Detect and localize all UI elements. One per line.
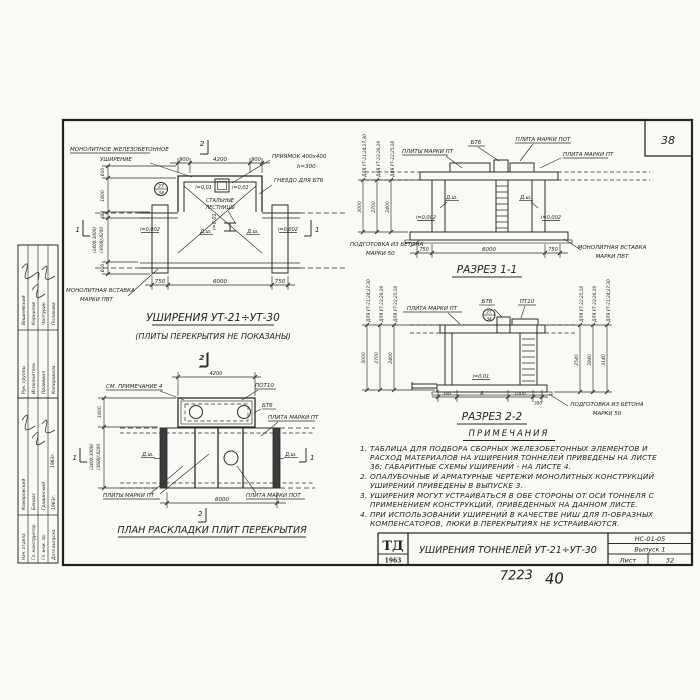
sheet-word: Лист	[619, 557, 637, 565]
svg-text:3140: 3140	[601, 354, 607, 366]
axis-label: Д.ш.	[246, 229, 259, 235]
handwritten-code: 7223	[500, 568, 534, 584]
svg-text:2840: 2840	[587, 354, 593, 366]
svg-text:ДЛЯ УТ-22;25;28: ДЛЯ УТ-22;25;28	[579, 286, 584, 323]
stamp-role: Рук. группы	[21, 365, 27, 394]
slope-label: i=0,002	[140, 227, 160, 233]
stamp-role: Исполнитель	[31, 362, 37, 394]
drawing-canvas: 38 Рук. группы Исполнитель Проверил Копи…	[0, 0, 700, 700]
prep-label: МАРКИ 50	[366, 251, 395, 257]
svg-text:1: 1	[76, 226, 80, 234]
svg-text:4200: 4200	[213, 157, 227, 163]
svg-text:3000: 3000	[357, 201, 363, 213]
svg-text:(2400;3000): (2400;3000)	[89, 444, 94, 470]
svg-text:6000: 6000	[213, 279, 227, 285]
svg-text:ДЛЯ УТ-22;25;28: ДЛЯ УТ-22;25;28	[390, 141, 395, 178]
prep-label: ПОДГОТОВКА ИЗ БЕТОНА	[570, 402, 643, 408]
monolithic-widening-label: МОНОЛИТНОЕ ЖЕЛЕЗОБЕТОННОЕ	[70, 147, 169, 153]
see-note-label: СМ. ПРИМЕЧАНИЕ 4	[106, 384, 163, 390]
note-item: 4. ПРИ ИСПОЛЬЗОВАНИИ УШИРЕНИЙ В КАЧЕСТВЕ…	[360, 510, 658, 528]
logo-td: ТД	[382, 539, 403, 554]
svg-text:2400: 2400	[388, 352, 394, 364]
sheet-title: УШИРЕНИЯ ТОННЕЛЕЙ УТ-21÷УТ-30	[419, 544, 597, 556]
drawing-sheet: 38 Рук. группы Исполнитель Проверил Копи…	[0, 0, 700, 700]
svg-text:34: 34	[486, 317, 492, 322]
detail-callout: 27 34	[155, 183, 168, 197]
svg-text:1: 1	[73, 454, 77, 462]
slope-label: i=0,01	[212, 213, 218, 230]
svg-text:300: 300	[100, 211, 105, 219]
section-2-2-title: РАЗРЕЗ 2-2	[462, 411, 523, 423]
axis-label: Д.ш.	[445, 195, 458, 201]
manhole	[224, 451, 238, 465]
svg-text:27: 27	[486, 310, 492, 315]
monolithic-widening-label: УШИРЕНИЕ	[100, 157, 132, 163]
note-item: 3. УШИРЕНИЯ МОГУТ УСТРАИВАТЬСЯ В ОБЕ СТО…	[360, 491, 658, 509]
pt-slabs-label: ПЛИТЫ МАРКИ ПТ	[402, 149, 454, 155]
bt6-label: БТ6	[482, 299, 493, 305]
svg-text:2: 2	[199, 354, 204, 362]
slope-label: i=0,01	[195, 185, 212, 191]
insert-label: МАРКИ ПВТ	[596, 254, 630, 260]
stairs-label: СТАЛЬНЫЕ	[206, 198, 235, 204]
pot-slab-label: ПЛИТА МАРКИ ПОТ	[516, 137, 571, 143]
plan-title: УШИРЕНИЯ УТ-21÷УТ-30	[146, 312, 280, 324]
stamp-name: Корнилов	[31, 302, 37, 325]
notes-block: ПРИМЕЧАНИЯ 1. ТАБЛИЦА ДЛЯ ПОДБОРА СБОРНЫ…	[360, 429, 658, 528]
dim-left-variants: ДЛЯ УТ-21;24;27;30 ДЛЯ УТ-23;26;29 ДЛЯ У…	[361, 279, 443, 392]
stamp-role: Копировала	[51, 365, 57, 394]
insert-label: МОНОЛИТНАЯ ВСТАВКА	[578, 245, 647, 251]
svg-text:(3600);4200: (3600);4200	[96, 444, 101, 470]
section-1-1-drawing: i=0,002 i=0,002 Д.ш. Д.ш. БТ6 ПЛИТА МАРК…	[350, 134, 650, 277]
i-beam-symbol	[224, 223, 236, 231]
handwritten-number: 40	[545, 569, 565, 588]
slab-layout-title: ПЛАН РАСКЛАДКИ ПЛИТ ПЕРЕКРЫТИЯ	[117, 525, 307, 536]
stamp-role: Проверил	[41, 371, 47, 394]
pt-slabs-label: ПЛИТЫ МАРКИ ПТ	[103, 493, 155, 499]
svg-text:2540: 2540	[574, 354, 580, 366]
stamp-name: 1963г.	[51, 495, 57, 510]
axis-label: Д.ш.	[141, 452, 154, 458]
svg-text:ДЛЯ УТ-23;26;29: ДЛЯ УТ-23;26;29	[592, 286, 597, 323]
insert-label: МОНОЛИТНАЯ ВСТАВКА	[66, 288, 135, 294]
slope-label: i=0,01	[232, 185, 249, 191]
bt6-label: БТ6	[262, 403, 273, 409]
hatch-opening	[190, 406, 203, 419]
stamp-name: Чалтурин	[41, 302, 47, 325]
axis-label: Д.ш.	[284, 452, 297, 458]
issue-label: Выпуск 1	[634, 546, 665, 554]
svg-text:4200: 4200	[210, 371, 223, 377]
svg-text:А: А	[479, 391, 484, 397]
notes-title: ПРИМЕЧАНИЯ	[360, 429, 658, 441]
svg-text:600: 600	[100, 168, 106, 177]
svg-text:1800: 1800	[100, 190, 106, 202]
section-1-1-title: РАЗРЕЗ 1-1	[457, 264, 517, 276]
sheet-number: 32	[666, 557, 674, 565]
pt-slab-label: ПЛИТА МАРКИ ПТ	[268, 415, 319, 421]
axis-label: Д.ш.	[519, 195, 532, 201]
svg-text:1: 1	[315, 226, 319, 234]
note-item: 2. ОПАЛУБОЧНЫЕ И АРМАТУРНЫЕ ЧЕРТЕЖИ МОНО…	[360, 472, 658, 490]
pot-slab-label: ПЛИТА МАРКИ ПОТ	[246, 493, 301, 499]
svg-text:1800: 1800	[97, 406, 103, 418]
svg-text:900: 900	[179, 157, 189, 163]
svg-text:2700: 2700	[371, 201, 377, 213]
dim-right-variants: ДЛЯ УТ-22;25;28 ДЛЯ УТ-23;26;29 ДЛЯ УТ-2…	[547, 279, 612, 394]
insert-label: МАРКИ ПВТ	[80, 297, 114, 303]
stamp-name: Полякова	[51, 302, 57, 325]
svg-text:750: 750	[275, 279, 286, 285]
svg-text:ДЛЯ УТ-21;24;27;30: ДЛЯ УТ-21;24;27;30	[362, 134, 367, 178]
socket-label: ГНЕЗДО ДЛЯ БТ6	[274, 178, 324, 184]
pit-label: h=300	[297, 164, 316, 170]
svg-text:1000: 1000	[514, 391, 526, 397]
pit-label: ПРИЯМОК 400х400	[272, 154, 327, 160]
svg-text:ДЛЯ УТ-23;26;29: ДЛЯ УТ-23;26;29	[379, 286, 384, 323]
pot10-label: ПОТ10	[255, 383, 274, 389]
svg-text:ДЛЯ УТ-21;24;27;30: ДЛЯ УТ-21;24;27;30	[606, 279, 611, 323]
svg-text:ДЛЯ УТ-23;26;29: ДЛЯ УТ-23;26;29	[376, 141, 381, 178]
stamp-name: Бандас	[31, 492, 37, 510]
svg-text:(3600);4200: (3600);4200	[99, 227, 104, 253]
dim-left: 600 1800 300 (2400;3000) (3600);4200 600	[92, 164, 176, 276]
stamp-role: Гл. конструктор	[31, 524, 36, 560]
svg-text:1: 1	[310, 454, 314, 462]
signatures	[22, 264, 55, 445]
stamp-name: Комаровский	[21, 479, 27, 510]
svg-text:600: 600	[100, 264, 106, 273]
svg-text:3000: 3000	[361, 352, 367, 364]
svg-text:2400: 2400	[385, 201, 391, 213]
svg-text:27: 27	[158, 184, 164, 190]
stamp-role: Гл. инж. пр.	[41, 534, 46, 560]
svg-text:750: 750	[419, 247, 429, 253]
prep-label: МАРКИ 50	[593, 411, 622, 417]
svg-text:(2400;3000): (2400;3000)	[92, 227, 97, 253]
slope-label: i=0,002	[278, 227, 298, 233]
stamp-year: 1963г.	[50, 453, 56, 468]
dim-bottom: 750 6000 750	[145, 276, 295, 290]
slope-label: i=0,01	[473, 374, 490, 380]
svg-text:2700: 2700	[374, 352, 380, 364]
stamp-name: Вишневский	[21, 295, 27, 325]
svg-text:6000: 6000	[215, 497, 229, 503]
slope-label: i=0,002	[541, 215, 561, 221]
bt6-label: БТ6	[471, 140, 482, 146]
svg-text:900: 900	[251, 157, 261, 163]
pt10-label: ПТ10	[520, 299, 535, 305]
slab-layout-plan: 2 4200 СМ. ПРИМЕЧАНИЕ 4 ПОТ10 БТ6 ПЛИТА …	[73, 353, 319, 537]
axis-label: Д.ш.	[199, 229, 212, 235]
svg-text:2: 2	[200, 140, 205, 148]
svg-text:6000: 6000	[482, 247, 496, 253]
svg-text:ДЛЯ УТ-22;25;28: ДЛЯ УТ-22;25;28	[393, 286, 398, 323]
plan-widening-drawing: 27 34 i=0,01 i=0,01 i=0,01 Д.ш. Д.ш. i=0…	[66, 140, 345, 366]
detail-callout: 27 34	[483, 309, 495, 322]
logo-year: 1963	[385, 558, 402, 565]
dim-top: 900 4200 900	[170, 157, 270, 173]
stamp-role: Нач. отдела	[21, 533, 26, 560]
stamp-name: Градинский	[41, 482, 47, 510]
stamp-code: НС-01-05	[635, 535, 666, 543]
pt-slab-label: ПЛИТА МАРКИ ПТ	[407, 306, 458, 312]
note-item: 1. ТАБЛИЦА ДЛЯ ПОДБОРА СБОРНЫХ ЖЕЛЕЗОБЕТ…	[360, 444, 658, 471]
plan-subtitle: (ПЛИТЫ ПЕРЕКРЫТИЯ НЕ ПОКАЗАНЫ)	[135, 332, 290, 341]
hatch-opening	[238, 406, 251, 419]
svg-text:ДЛЯ УТ-21;24;27;30: ДЛЯ УТ-21;24;27;30	[366, 279, 371, 323]
stamp-role: Дата выпуска	[51, 529, 56, 561]
stairs-label: ЛЕСТНИЦЫ	[205, 205, 236, 211]
svg-text:2: 2	[198, 510, 203, 518]
section-2-2-drawing: i=0,01 ПЛИТА МАРКИ ПТ БТ6 27 34 ПТ10 ПОД…	[361, 279, 644, 424]
pt-slab-label: ПЛИТА МАРКИ ПТ	[563, 152, 614, 158]
svg-text:750: 750	[548, 247, 558, 253]
corner-number: 38	[661, 134, 675, 147]
svg-text:34: 34	[158, 191, 164, 197]
dim-bottom: 750 6000 750	[410, 244, 568, 258]
title-block: ТД 1963 УШИРЕНИЯ ТОННЕЛЕЙ УТ-21÷УТ-30 НС…	[378, 533, 692, 565]
svg-text:300: 300	[443, 391, 452, 397]
svg-text:750: 750	[155, 279, 166, 285]
margin-stamp: Рук. группы Исполнитель Проверил Копиров…	[18, 245, 58, 563]
svg-text:300: 300	[534, 401, 542, 406]
slope-label: i=0,002	[416, 215, 436, 221]
